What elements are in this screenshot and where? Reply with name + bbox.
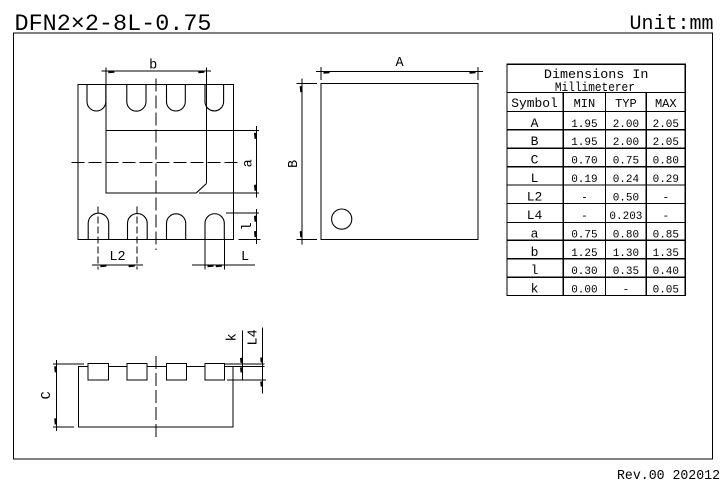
svg-text:C: C bbox=[40, 391, 55, 399]
svg-text:B: B bbox=[531, 134, 539, 149]
svg-text:k: k bbox=[226, 333, 241, 341]
svg-text:B: B bbox=[287, 160, 302, 168]
svg-text:-: - bbox=[662, 211, 669, 223]
svg-text:-: - bbox=[581, 193, 588, 205]
svg-text:L: L bbox=[531, 171, 539, 186]
svg-text:1.95: 1.95 bbox=[571, 119, 597, 131]
svg-text:1.30: 1.30 bbox=[613, 248, 639, 260]
svg-text:0.75: 0.75 bbox=[613, 156, 639, 168]
svg-text:0.24: 0.24 bbox=[613, 174, 640, 186]
svg-text:1.95: 1.95 bbox=[571, 137, 597, 149]
svg-text:0.40: 0.40 bbox=[653, 266, 679, 278]
svg-text:-: - bbox=[662, 193, 669, 205]
svg-text:2.00: 2.00 bbox=[613, 137, 639, 149]
svg-text:k: k bbox=[531, 282, 539, 297]
svg-text:L2: L2 bbox=[527, 190, 543, 205]
svg-text:Symbol: Symbol bbox=[511, 96, 558, 111]
svg-text:L4: L4 bbox=[527, 208, 543, 223]
svg-text:C: C bbox=[531, 153, 539, 168]
svg-text:b: b bbox=[531, 245, 539, 260]
svg-text:L2: L2 bbox=[109, 250, 125, 265]
svg-text:MIN: MIN bbox=[574, 97, 596, 111]
svg-text:A: A bbox=[395, 56, 404, 71]
svg-text:b: b bbox=[149, 59, 157, 74]
svg-text:Rev.00 202012: Rev.00 202012 bbox=[617, 468, 720, 484]
svg-text:2.00: 2.00 bbox=[613, 119, 639, 131]
svg-text:0.00: 0.00 bbox=[571, 285, 597, 297]
svg-text:L: L bbox=[241, 250, 249, 265]
svg-text:A: A bbox=[531, 116, 539, 131]
svg-text:0.203: 0.203 bbox=[609, 211, 642, 223]
svg-text:1.25: 1.25 bbox=[571, 248, 597, 260]
svg-text:0.19: 0.19 bbox=[571, 174, 597, 186]
svg-text:0.85: 0.85 bbox=[653, 229, 679, 241]
svg-text:L4: L4 bbox=[247, 329, 262, 345]
svg-text:0.29: 0.29 bbox=[653, 174, 679, 186]
svg-text:a: a bbox=[531, 226, 539, 241]
svg-text:0.50: 0.50 bbox=[613, 193, 639, 205]
svg-text:TYP: TYP bbox=[615, 97, 637, 111]
svg-text:2.05: 2.05 bbox=[653, 137, 679, 149]
svg-text:0.75: 0.75 bbox=[571, 229, 597, 241]
svg-text:-: - bbox=[623, 285, 630, 297]
svg-text:0.35: 0.35 bbox=[613, 266, 639, 278]
svg-text:-: - bbox=[581, 211, 588, 223]
svg-text:Millimeterer: Millimeterer bbox=[555, 80, 635, 95]
svg-text:0.05: 0.05 bbox=[653, 285, 679, 297]
svg-text:MAX: MAX bbox=[655, 97, 677, 111]
svg-text:1.35: 1.35 bbox=[653, 248, 679, 260]
svg-text:0.70: 0.70 bbox=[571, 156, 597, 168]
svg-text:a: a bbox=[242, 159, 257, 167]
svg-text:0.30: 0.30 bbox=[571, 266, 597, 278]
svg-text:l: l bbox=[241, 222, 256, 230]
svg-text:l: l bbox=[531, 263, 539, 278]
svg-text:0.80: 0.80 bbox=[653, 156, 679, 168]
svg-text:2.05: 2.05 bbox=[653, 119, 679, 131]
svg-text:0.80: 0.80 bbox=[613, 229, 639, 241]
